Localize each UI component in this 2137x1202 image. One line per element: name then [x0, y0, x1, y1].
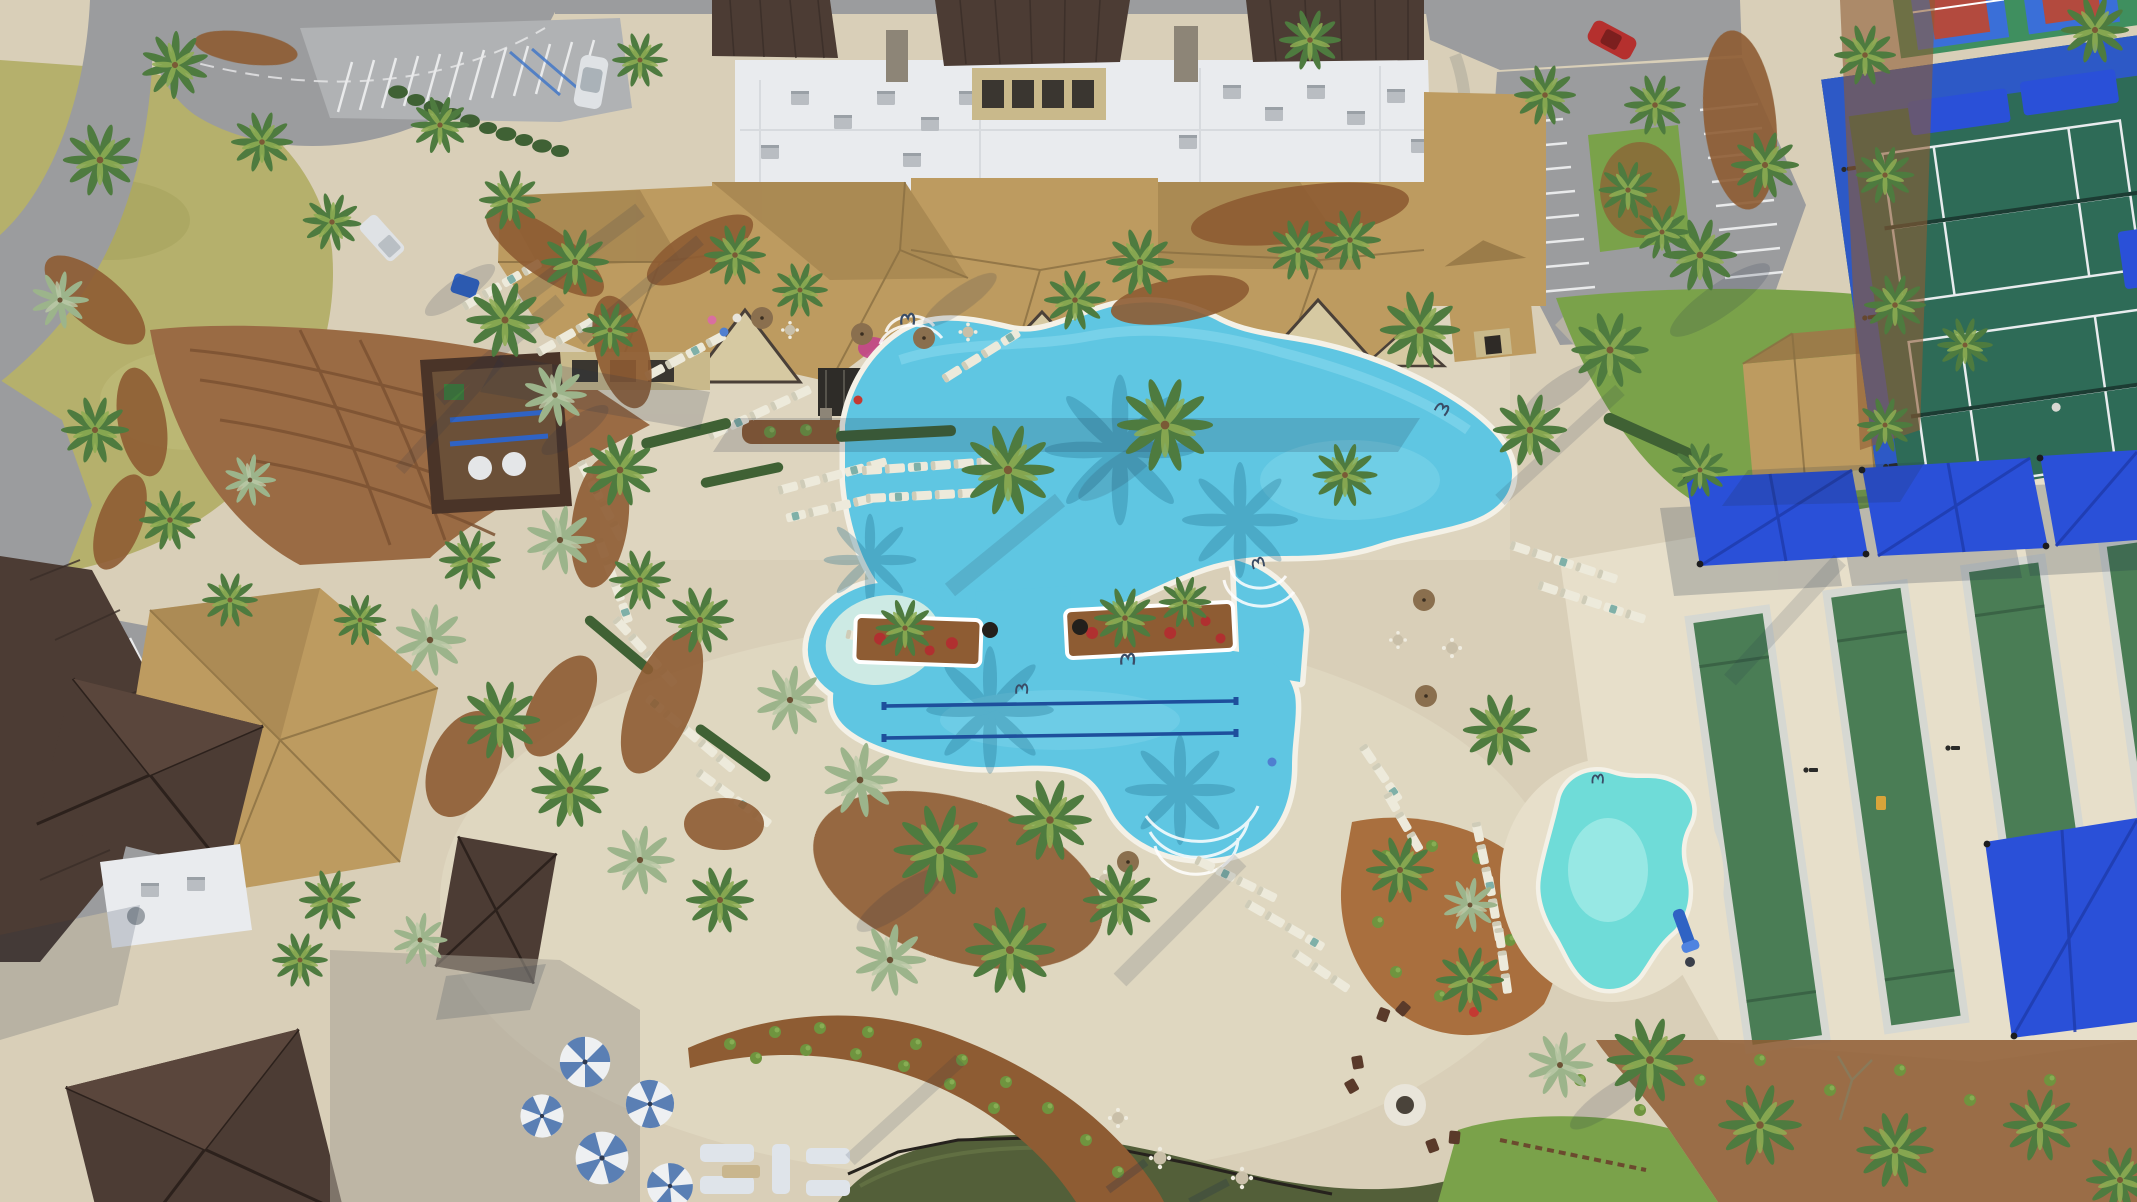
- planter-island: [1065, 602, 1235, 659]
- bistro-umbrella: [982, 622, 998, 638]
- striped-umbrella: [560, 1037, 610, 1087]
- bistro-umbrella: [1072, 619, 1088, 635]
- score-stand: [1876, 796, 1886, 810]
- scene-canvas: [0, 0, 2137, 1202]
- stone-chimney: [1174, 26, 1198, 82]
- shade-canopy: [2040, 450, 2137, 546]
- stone-chimney: [886, 30, 908, 82]
- aerial-photo: [0, 0, 2137, 1202]
- fire-table: [722, 1165, 760, 1178]
- shade-canopy: [1985, 818, 2137, 1038]
- person: [1685, 957, 1695, 967]
- fire-pit-circle: [1384, 1084, 1426, 1126]
